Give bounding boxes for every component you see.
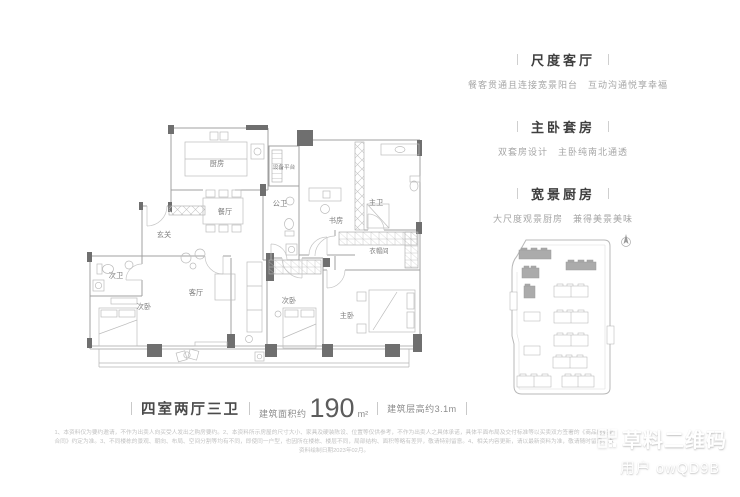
divider-bar <box>517 188 518 199</box>
room-label-master-bedroom: 主卧 <box>340 311 354 320</box>
feature-column: 尺度客厅 餐客贯通且连接宽景阳台 互动沟通悦享幸福 主卧套房 双套房设计 主卧纯… <box>468 50 658 251</box>
divider-bar <box>608 54 609 65</box>
room-label-second-bath: 次卫 <box>109 271 123 280</box>
unit-summary: 四室两厅三卫 建筑面积约 190 m² 建筑层高约3.1m <box>131 395 467 421</box>
room-label-bedroom-middle: 次卧 <box>282 296 296 305</box>
site-plan <box>486 226 646 401</box>
room-label-kitchen: 厨房 <box>210 159 224 168</box>
room-label-guest-bath: 公卫 <box>273 199 287 208</box>
feature-desc: 大尺度观景厨房 兼得美景美味 <box>468 212 658 225</box>
disclaimer-text: 1、本资料仅为要约邀请，不作为出卖人向买受人发出之购房要约。2、本资料所示房屋的… <box>53 428 615 455</box>
feature-master-suite: 主卧套房 双套房设计 主卧纯南北通透 <box>468 117 658 158</box>
area-value: 190 <box>310 395 355 422</box>
disclaimer-section: 1、本资料仅为要约邀请，不作为出卖人向买受人发出之购房要约。2、本资料所示房屋的… <box>53 428 615 450</box>
room-label-study: 书房 <box>329 216 343 225</box>
feature-title: 宽景厨房 <box>531 184 595 203</box>
room-label-bedroom-west: 次卧 <box>137 302 151 311</box>
area-unit: m² <box>358 409 369 419</box>
divider-bar <box>131 402 132 415</box>
plan-doors <box>126 206 384 288</box>
watermark-user: 用户 owQD9B <box>620 457 727 478</box>
qr-code-icon <box>598 429 617 448</box>
watermark-brand: 草料二维码 <box>622 424 727 453</box>
room-label-dining: 餐厅 <box>218 207 232 216</box>
divider-bar <box>608 188 609 199</box>
divider-bar <box>608 121 609 132</box>
divider-bar <box>466 402 467 415</box>
room-label-living: 客厅 <box>189 288 203 297</box>
feature-title: 尺度客厅 <box>531 50 595 69</box>
divider-bar <box>377 402 378 415</box>
layout-type: 四室两厅三卫 <box>141 398 240 419</box>
divider-bar <box>249 402 250 415</box>
feature-desc: 双套房设计 主卧纯南北通透 <box>468 145 658 158</box>
divider-bar <box>517 121 518 132</box>
divider-bar <box>517 54 518 65</box>
room-label-master-bath: 主卫 <box>369 198 383 207</box>
feature-desc: 餐客贯通且连接宽景阳台 互动沟通悦享幸福 <box>468 78 658 91</box>
site-buildings <box>510 284 614 387</box>
qr-watermark: 草料二维码 用户 owQD9B <box>598 424 727 478</box>
floor-height: 建筑层高约3.1m <box>387 402 457 415</box>
area-prefix: 建筑面积约 <box>259 407 307 420</box>
floorplan: 厨房 设备平台 公卫 书房 主卫 餐厅 玄关 次卫 次卧 客厅 次卧 衣帽间 主… <box>83 106 441 396</box>
feature-title: 主卧套房 <box>531 117 595 136</box>
room-label-foyer: 玄关 <box>157 230 171 239</box>
room-label-equipment-platform: 设备平台 <box>273 163 296 171</box>
compass-icon <box>622 234 631 247</box>
feature-living-room: 尺度客厅 餐客贯通且连接宽景阳台 互动沟通悦享幸福 <box>468 50 658 91</box>
area-group: 建筑面积约 190 m² <box>259 395 368 422</box>
room-label-cloakroom: 衣帽间 <box>369 246 388 255</box>
feature-kitchen: 宽景厨房 大尺度观景厨房 兼得美景美味 <box>468 184 658 225</box>
